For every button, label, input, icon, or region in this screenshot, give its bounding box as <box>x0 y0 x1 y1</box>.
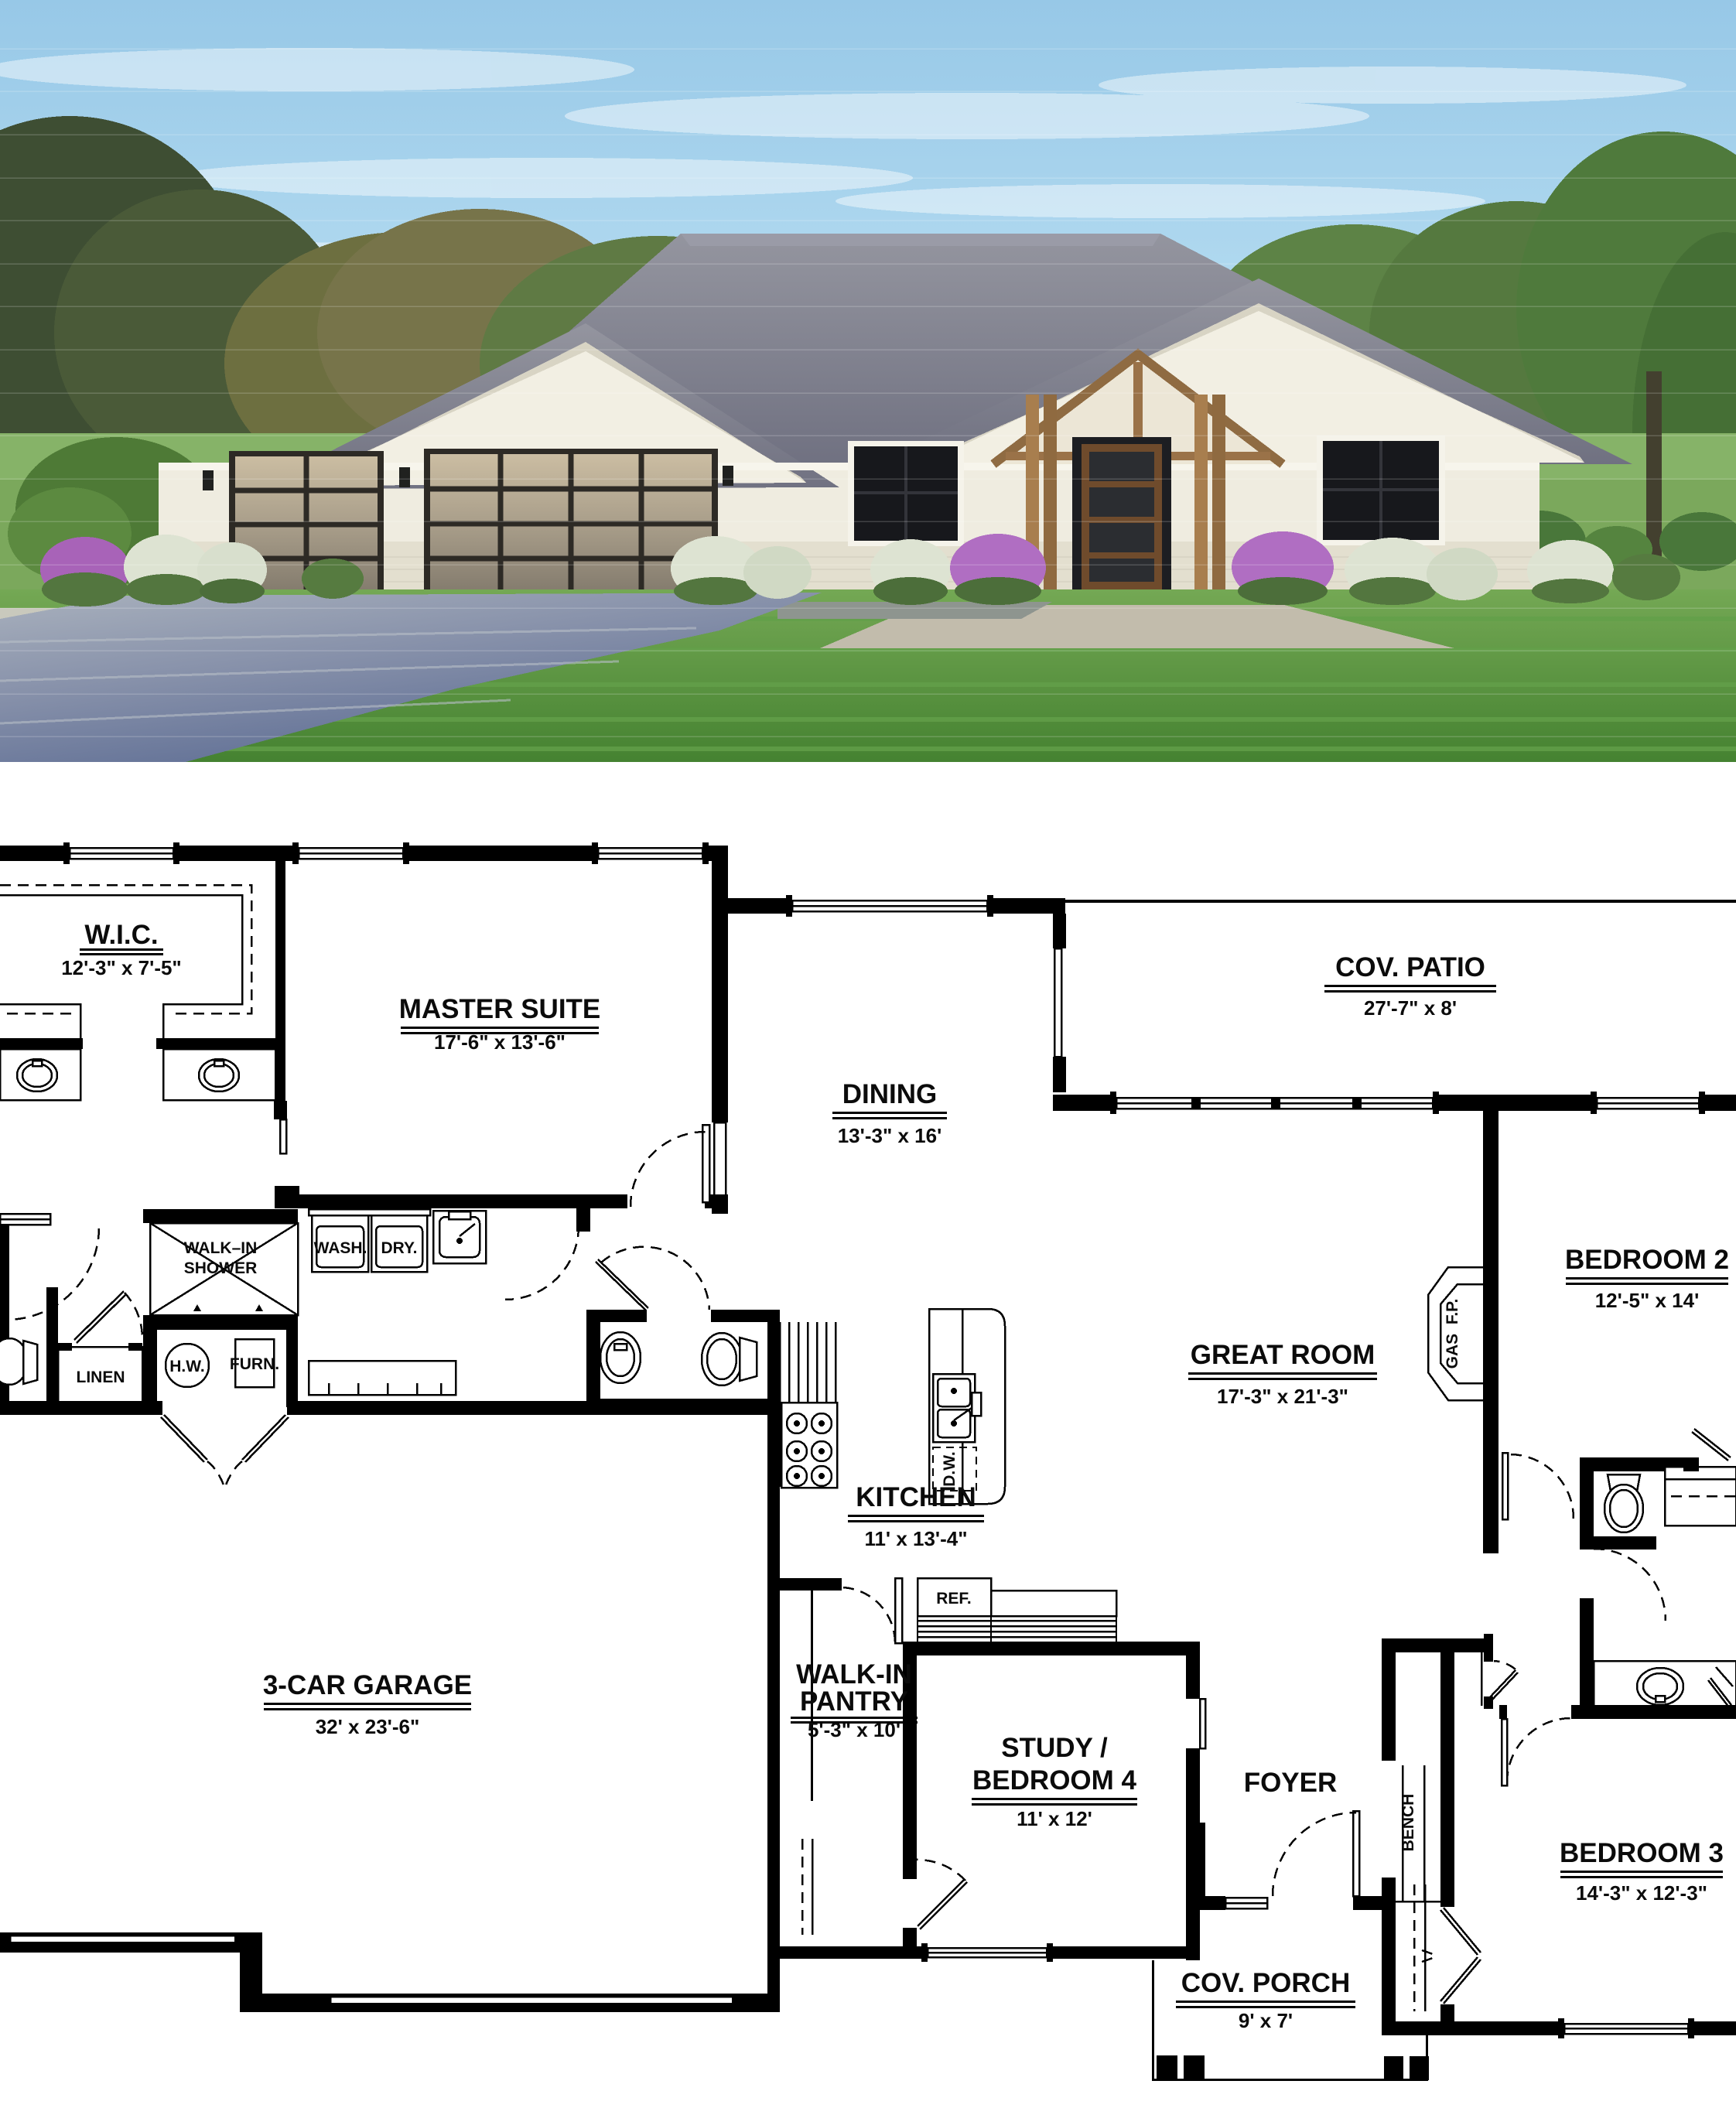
svg-text:DRY.: DRY. <box>381 1239 417 1257</box>
svg-text:FOYER: FOYER <box>1244 1768 1338 1798</box>
svg-text:GAS F.P.: GAS F.P. <box>1444 1299 1461 1369</box>
svg-text:BEDROOM 3: BEDROOM 3 <box>1560 1838 1724 1868</box>
svg-text:27'-7" x 8': 27'-7" x 8' <box>1364 996 1457 1020</box>
svg-text:DINING: DINING <box>842 1079 938 1109</box>
svg-text:W.I.C.: W.I.C. <box>84 920 158 950</box>
svg-text:FURN.: FURN. <box>230 1355 279 1373</box>
svg-text:WASH.: WASH. <box>314 1239 367 1257</box>
svg-text:5'-3" x 10': 5'-3" x 10' <box>808 1718 900 1741</box>
svg-text:H.W.: H.W. <box>169 1358 205 1375</box>
svg-text:COV. PATIO: COV. PATIO <box>1335 952 1485 982</box>
svg-text:WALK–IN: WALK–IN <box>184 1239 258 1257</box>
svg-text:PANTRY: PANTRY <box>800 1686 908 1717</box>
svg-text:REF.: REF. <box>936 1590 972 1608</box>
svg-text:14'-3" x 12'-3": 14'-3" x 12'-3" <box>1576 1881 1707 1905</box>
svg-text:MASTER SUITE: MASTER SUITE <box>399 994 601 1024</box>
svg-text:17'-6" x 13'-6": 17'-6" x 13'-6" <box>434 1030 566 1054</box>
svg-text:SHOWER: SHOWER <box>184 1259 258 1277</box>
svg-text:STUDY /: STUDY / <box>1001 1733 1108 1763</box>
svg-text:GREAT ROOM: GREAT ROOM <box>1191 1340 1375 1370</box>
svg-text:32' x 23'-6": 32' x 23'-6" <box>316 1715 420 1738</box>
svg-text:13'-3" x 16': 13'-3" x 16' <box>838 1124 942 1147</box>
svg-text:12'-3" x 7'-5": 12'-3" x 7'-5" <box>61 956 182 979</box>
svg-text:BEDROOM 2: BEDROOM 2 <box>1565 1245 1729 1275</box>
svg-text:BENCH: BENCH <box>1399 1794 1417 1852</box>
svg-text:3-CAR GARAGE: 3-CAR GARAGE <box>263 1670 472 1700</box>
svg-text:9' x 7': 9' x 7' <box>1239 2009 1293 2032</box>
svg-text:BEDROOM 4: BEDROOM 4 <box>972 1765 1137 1796</box>
svg-text:11' x 12': 11' x 12' <box>1017 1807 1092 1830</box>
svg-text:LINEN: LINEN <box>77 1368 125 1386</box>
svg-text:12'-5" x 14': 12'-5" x 14' <box>1595 1289 1700 1312</box>
svg-text:D.W.: D.W. <box>941 1451 959 1487</box>
svg-text:11' x 13'-4": 11' x 13'-4" <box>864 1527 967 1550</box>
svg-text:17'-3" x 21'-3": 17'-3" x 21'-3" <box>1217 1385 1348 1408</box>
svg-text:WALK-IN: WALK-IN <box>796 1659 912 1690</box>
svg-text:COV. PORCH: COV. PORCH <box>1181 1968 1350 1998</box>
